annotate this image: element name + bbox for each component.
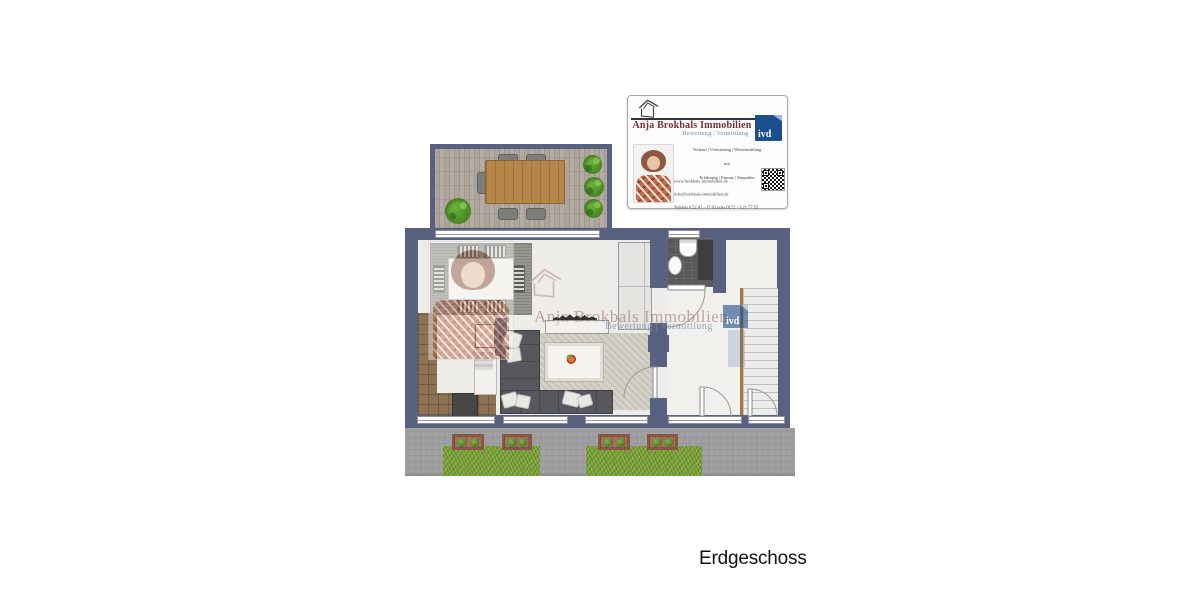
bush-icon	[664, 438, 673, 447]
ivd-badge: ivd	[755, 115, 782, 141]
terrace-chair	[526, 208, 546, 220]
card-tagline: Bewertung | Vermittlung	[668, 131, 763, 137]
bush-icon	[445, 198, 471, 224]
planter	[598, 434, 630, 450]
bush-icon	[457, 438, 466, 447]
bush-icon	[652, 438, 661, 447]
terrace-table	[485, 160, 565, 204]
bush-icon	[583, 155, 602, 174]
floor-plan: Anja Brokbals Immobilien Bewertung | Ver…	[405, 144, 795, 476]
bush-icon	[507, 438, 516, 447]
terrace	[430, 144, 612, 228]
floor-plan-page: Anja Brokbals Immobilien Bewertung | Ver…	[0, 0, 1200, 600]
planter	[647, 434, 678, 450]
bush-icon	[584, 177, 604, 197]
terrace-chair	[498, 208, 518, 220]
card-title: Anja Brokbals Immobilien	[630, 120, 754, 131]
bush-icon	[584, 199, 603, 218]
bush-icon	[603, 438, 612, 447]
planter	[502, 434, 532, 450]
building	[405, 228, 790, 428]
door-swings	[405, 228, 790, 428]
bush-icon	[518, 438, 527, 447]
bush-icon	[616, 438, 625, 447]
house-outline-icon	[637, 98, 663, 118]
grass-patch	[586, 446, 702, 476]
planter	[452, 434, 484, 450]
floor-label: Erdgeschoss	[699, 548, 807, 570]
bush-icon	[470, 438, 479, 447]
pavement	[405, 428, 795, 476]
grass-patch	[443, 446, 540, 476]
